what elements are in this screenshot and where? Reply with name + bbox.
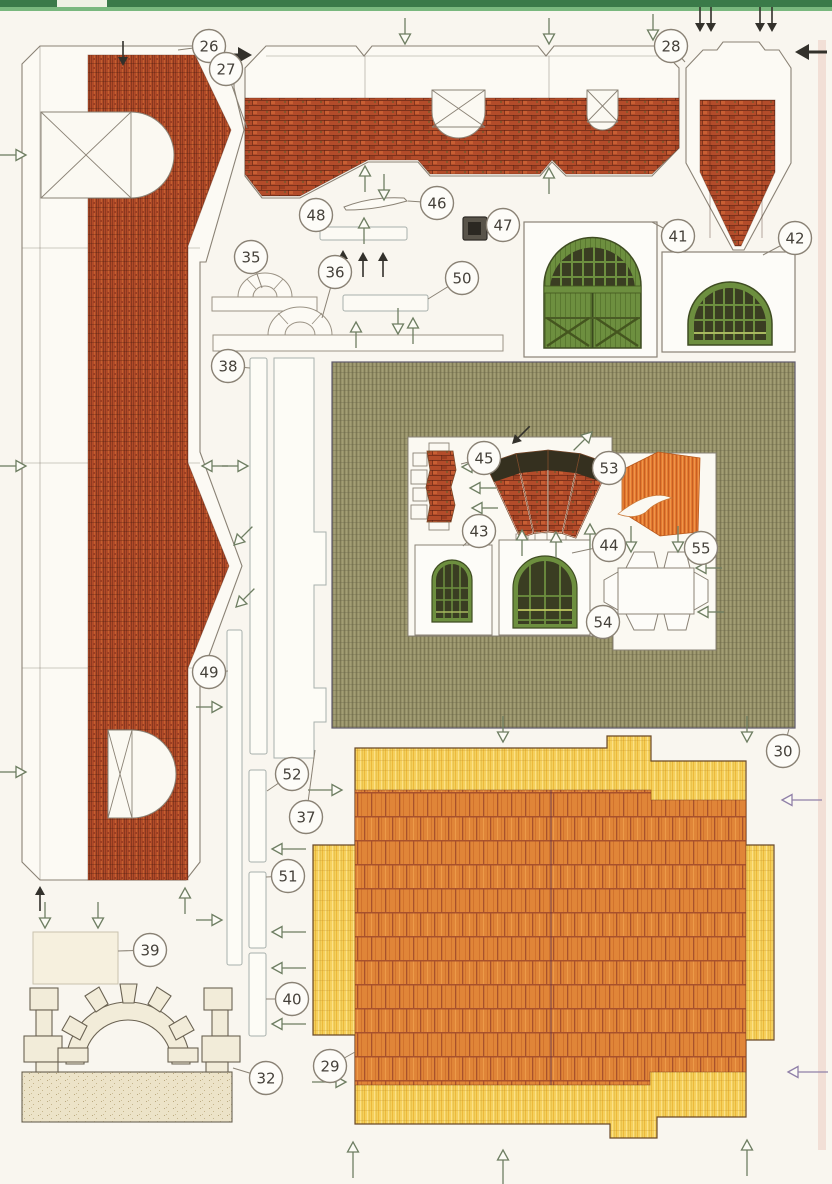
callout-41: 41 [662,220,695,253]
svg-text:36: 36 [325,263,344,281]
svg-text:53: 53 [599,459,618,477]
callout-27: 27 [210,53,243,86]
svg-text:37: 37 [296,808,315,826]
fold-arrow [272,963,306,974]
callout-42: 42 [779,222,812,255]
fold-arrow [93,902,104,928]
fold-arrow [360,166,371,192]
fold-arrow [35,886,45,911]
part-38-strip [250,358,267,754]
svg-text:45: 45 [474,449,493,467]
svg-text:49: 49 [199,663,218,681]
svg-text:48: 48 [306,206,325,224]
callout-48: 48 [300,199,333,232]
svg-text:54: 54 [593,613,612,631]
svg-text:51: 51 [278,867,297,885]
fold-arrow [272,1019,306,1030]
window-opening-top [41,112,174,198]
svg-text:40: 40 [282,990,301,1008]
part-47-chimney-cap [463,217,487,240]
part-41-door-panel [524,222,657,357]
callout-39: 39 [134,934,167,967]
part-44-window-panel [499,540,590,635]
callout-45: 45 [468,442,501,475]
svg-text:41: 41 [668,227,687,245]
callout-40: 40 [276,983,309,1016]
fold-arrow [348,1142,359,1178]
svg-text:39: 39 [140,941,159,959]
callout-32: 32 [250,1062,283,1095]
callout-55: 55 [685,532,718,565]
callout-51: 51 [272,860,305,893]
fold-arrow [379,174,390,200]
svg-text:28: 28 [661,37,680,55]
fold-arrow [648,14,659,40]
fold-arrow [222,461,248,472]
callout-38: 38 [212,350,245,383]
callout-44: 44 [593,529,626,562]
fold-arrow [498,1150,509,1184]
part-46-ridge-sliver [344,198,407,210]
fold-arrow [393,308,404,334]
fold-arrow [544,18,555,44]
part-40-strip [249,953,266,1036]
svg-text:27: 27 [216,60,235,78]
part-52-strip [249,770,266,862]
svg-text:43: 43 [469,522,488,540]
svg-text:46: 46 [427,194,446,212]
part-28-gable-strip [686,42,791,250]
part-43-window-panel [415,545,492,635]
window-opening-a [432,90,485,138]
fold-arrow [544,168,555,194]
callout-35: 35 [235,241,268,274]
sheet-artwork: 2627283536484647504142383045534344555449… [0,0,832,1184]
svg-text:29: 29 [320,1057,339,1075]
svg-text:30: 30 [773,742,792,760]
part-27-wall-band [245,46,679,198]
scan-top-edge [0,0,832,11]
part-51-strip [249,872,266,948]
callout-37: 37 [290,801,323,834]
callout-53: 53 [593,452,626,485]
svg-text:32: 32 [256,1069,275,1087]
callout-43: 43 [463,515,496,548]
fold-arrow [742,1140,753,1176]
svg-text:44: 44 [599,536,618,554]
svg-text:52: 52 [282,765,301,783]
callout-46: 46 [421,187,454,220]
svg-text:38: 38 [218,357,237,375]
callout-36: 36 [319,256,352,289]
part-35-arch-trim [212,273,317,311]
part-39-plate [33,932,118,984]
svg-text:55: 55 [691,539,710,557]
callout-47: 47 [487,209,520,242]
svg-text:42: 42 [785,229,804,247]
scan-right-edge [818,40,826,1150]
callout-30: 30 [767,735,800,768]
svg-text:35: 35 [241,248,260,266]
callout-49: 49 [193,656,226,689]
callout-50: 50 [446,262,479,295]
part-37-strip [274,358,326,758]
part-32-arch-bridge [22,984,240,1122]
window-opening-b [587,90,618,130]
svg-text:50: 50 [452,269,471,287]
fold-arrow [180,888,191,914]
svg-text:26: 26 [199,37,218,55]
part-49-strip [227,630,242,965]
fold-arrow [272,927,306,938]
fold-arrow [782,795,822,806]
fold-arrow [196,915,222,926]
callout-28: 28 [655,30,688,63]
part-50-strip [343,295,428,311]
fold-arrow [358,252,368,277]
svg-text:47: 47 [493,216,512,234]
fold-arrow [378,252,388,277]
fold-arrow [400,18,411,44]
callout-54: 54 [587,606,620,639]
callout-29: 29 [314,1050,347,1083]
part-30-roof-sheet [332,362,795,728]
papercraft-parts-sheet: 2627283536484647504142383045534344555449… [0,0,832,1184]
fold-arrow [308,785,342,796]
fold-arrow [40,902,51,928]
callout-52: 52 [276,758,309,791]
fold-arrow [272,844,306,855]
part-42-window-panel [662,252,795,352]
part-29-main-roof [313,736,774,1138]
